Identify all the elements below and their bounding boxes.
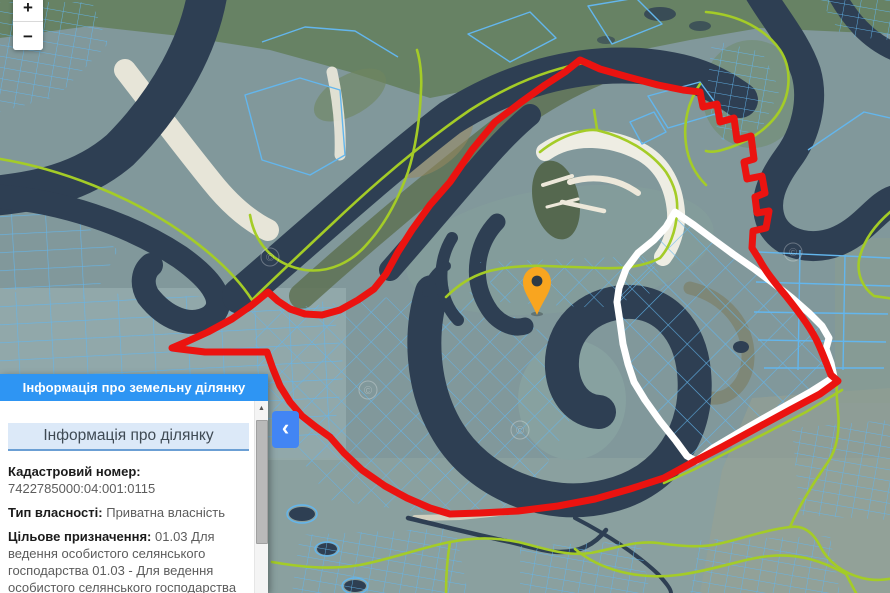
field-value: Приватна власність [106, 505, 225, 520]
svg-text:©: © [364, 385, 372, 397]
panel-collapse-button[interactable]: ‹ [272, 411, 299, 448]
panel-title-bar[interactable]: Інформація про земельну ділянку [0, 374, 268, 401]
field-designated-purpose: Цільове призначення: 01.03 Для ведення о… [8, 528, 249, 593]
scroll-thumb[interactable] [256, 420, 268, 544]
field-label: Цільове призначення: [8, 529, 151, 544]
field-ownership-type: Тип власності: Приватна власність [8, 504, 249, 521]
scroll-up-button[interactable]: ▲ [255, 401, 268, 415]
svg-text:©: © [266, 252, 274, 264]
marker-hole [532, 276, 543, 287]
zoom-in-button[interactable]: + [13, 0, 43, 21]
section-title: Інформація про ділянку [8, 423, 249, 451]
panel-body: Інформація про ділянку Кадастровий номер… [0, 401, 268, 593]
field-label: Кадастровий номер: [8, 463, 249, 480]
land-parcel-info-panel: Інформація про земельну ділянку Інформац… [0, 374, 268, 593]
cadastral-map-app: © © © © + − Інформація про земельну діля… [0, 0, 890, 593]
panel-title: Інформація про земельну ділянку [23, 380, 246, 395]
svg-text:©: © [516, 425, 524, 437]
chevron-left-icon: ‹ [282, 417, 289, 439]
panel-scrollbar[interactable]: ▲ [254, 401, 268, 593]
field-cadastral-number: Кадастровий номер: 7422785000:04:001:011… [8, 463, 249, 497]
field-value: 7422785000:04:001:0115 [8, 480, 249, 497]
field-label: Тип власності: [8, 505, 103, 520]
zoom-out-button[interactable]: − [13, 22, 43, 50]
map-zoom-control: + − [13, 0, 43, 50]
svg-text:©: © [789, 247, 797, 259]
